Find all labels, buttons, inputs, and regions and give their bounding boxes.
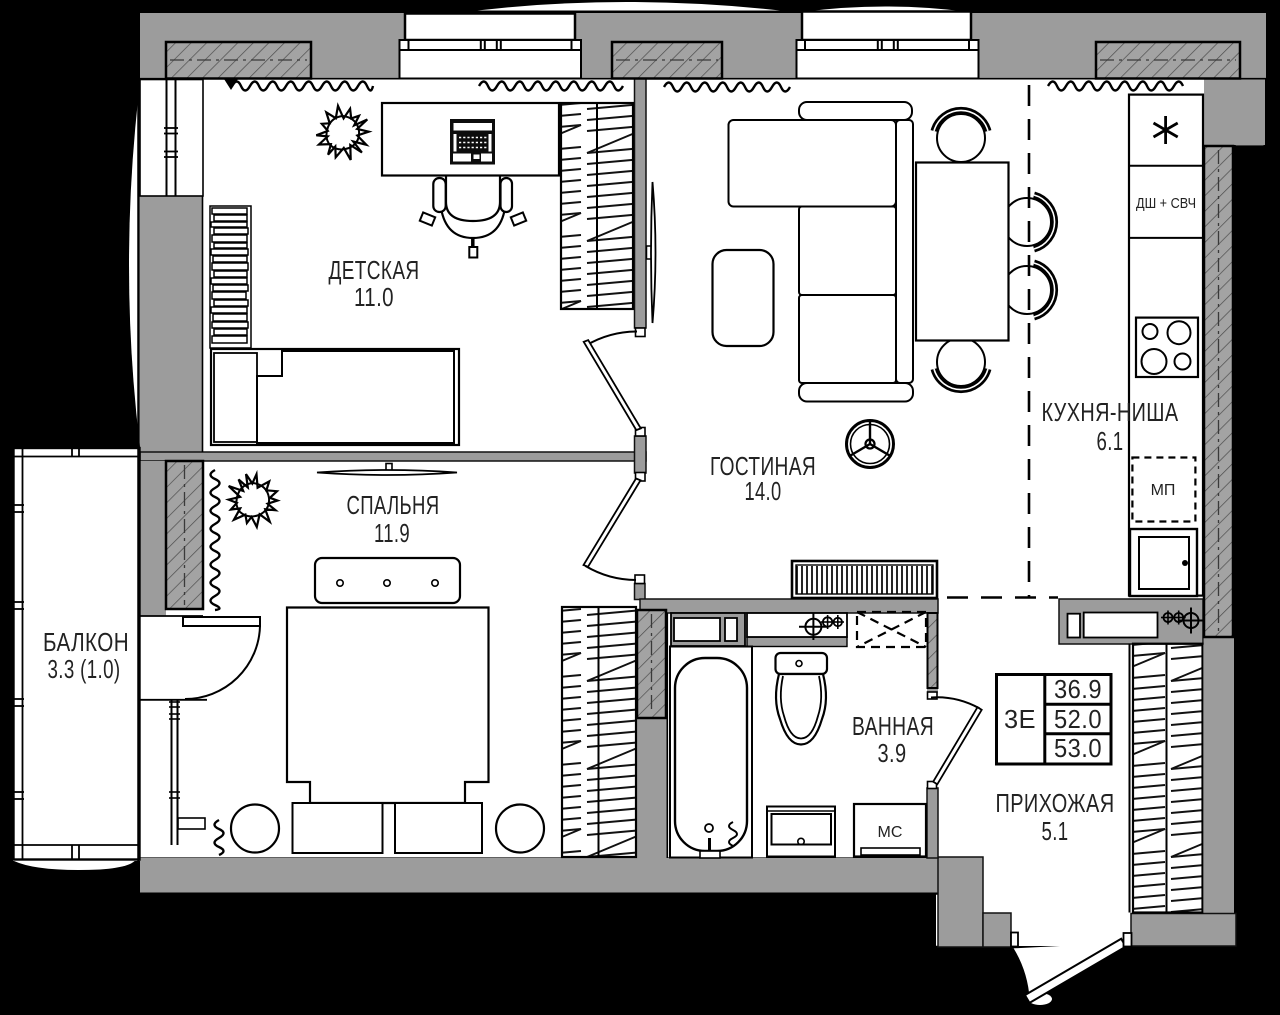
- svg-text:ДШ + СВЧ: ДШ + СВЧ: [1136, 195, 1196, 212]
- svg-text:3.9: 3.9: [878, 738, 907, 768]
- svg-text:6.1: 6.1: [1097, 426, 1124, 456]
- svg-text:КУХНЯ-НИША: КУХНЯ-НИША: [1042, 397, 1179, 427]
- svg-text:БАЛКОН: БАЛКОН: [43, 627, 129, 657]
- svg-text:5.1: 5.1: [1042, 816, 1069, 846]
- svg-text:53.0: 53.0: [1054, 733, 1102, 763]
- svg-text:52.0: 52.0: [1054, 704, 1102, 734]
- svg-text:14.0: 14.0: [745, 476, 782, 506]
- svg-text:МС: МС: [878, 824, 903, 841]
- svg-text:11.0: 11.0: [354, 282, 394, 312]
- svg-text:МП: МП: [1151, 482, 1176, 499]
- svg-text:3.3 (1.0): 3.3 (1.0): [48, 654, 121, 684]
- svg-text:СПАЛЬНЯ: СПАЛЬНЯ: [347, 490, 440, 520]
- svg-text:ВАННАЯ: ВАННАЯ: [852, 711, 934, 741]
- svg-text:11.9: 11.9: [374, 518, 410, 548]
- svg-text:36.9: 36.9: [1054, 674, 1102, 704]
- svg-text:3Е: 3Е: [1004, 704, 1036, 734]
- svg-text:ПРИХОЖАЯ: ПРИХОЖАЯ: [996, 788, 1115, 818]
- svg-text:ДЕТСКАЯ: ДЕТСКАЯ: [329, 255, 420, 285]
